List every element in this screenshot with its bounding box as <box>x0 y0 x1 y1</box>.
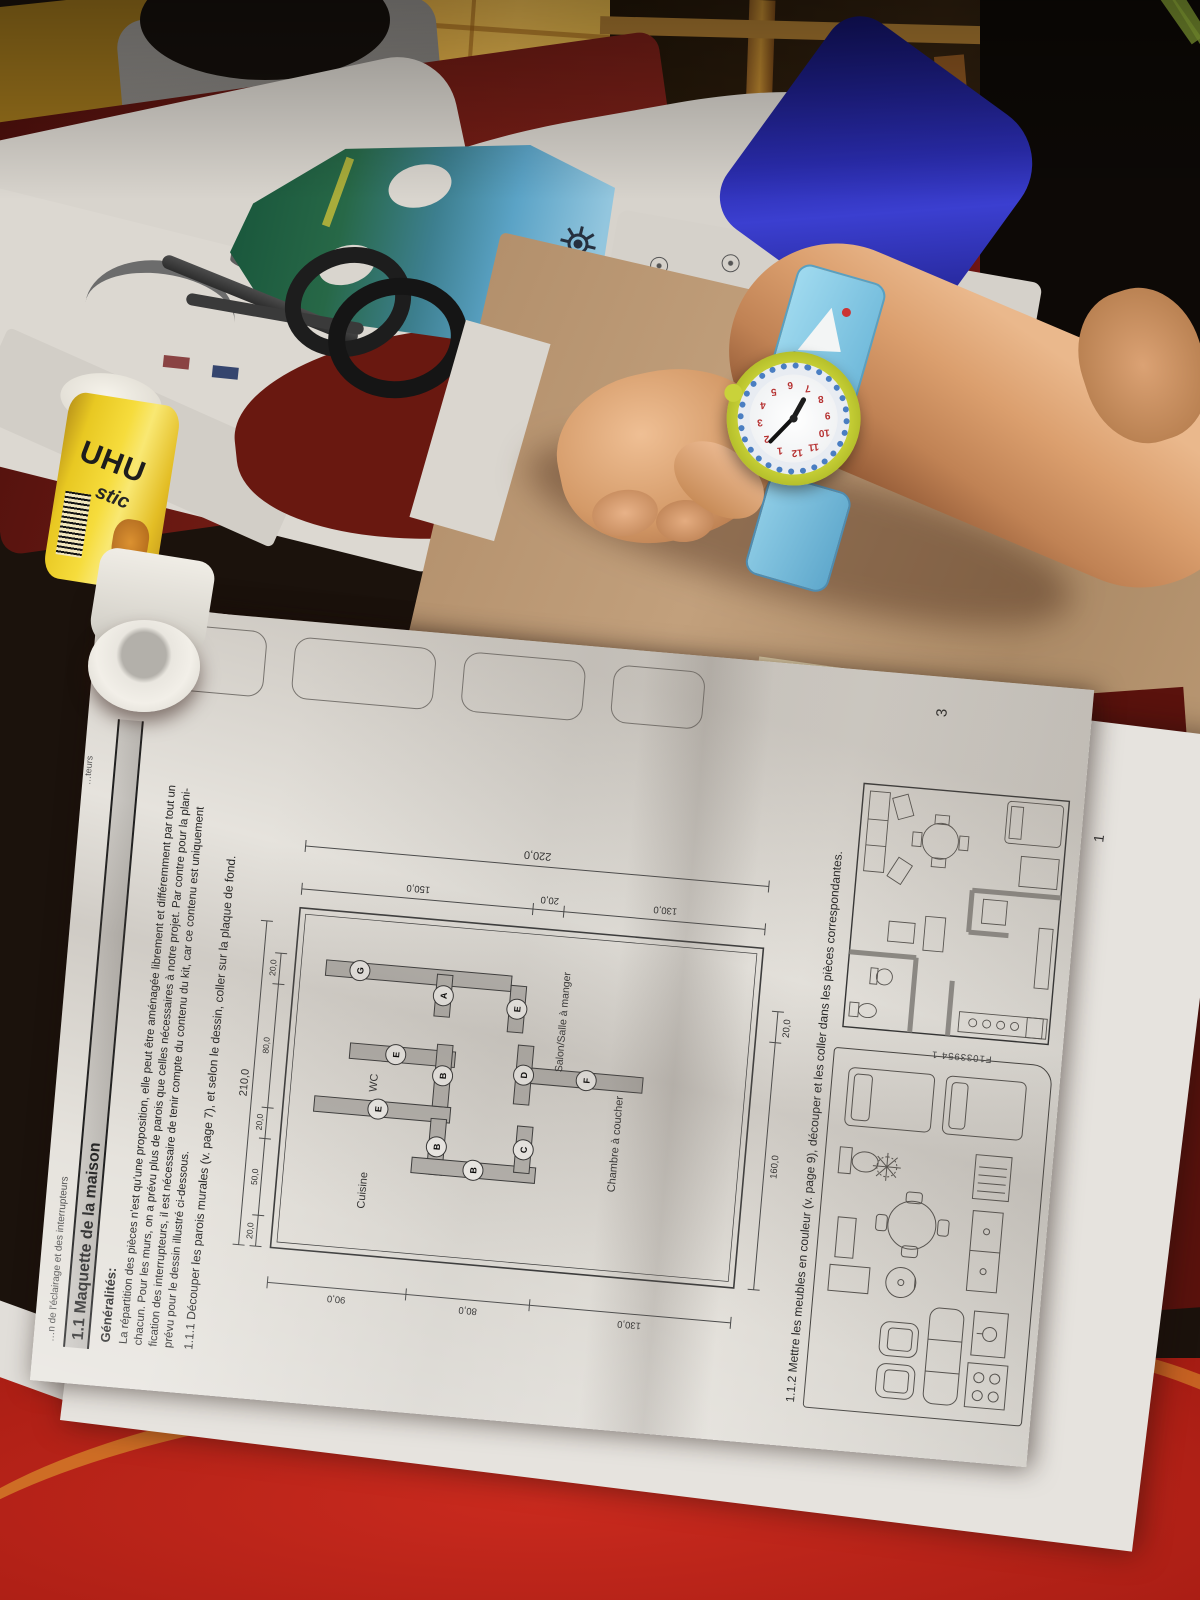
svg-text:160,0: 160,0 <box>768 1155 781 1180</box>
printed-mark <box>163 355 190 370</box>
strap-dot <box>841 307 852 318</box>
glue-stick-cap <box>88 620 200 712</box>
dial-center <box>789 414 798 423</box>
svg-text:210,0: 210,0 <box>238 1068 252 1096</box>
svg-text:20,0: 20,0 <box>540 894 559 907</box>
wall-strip-outline <box>460 651 587 721</box>
partial-text: …teurs <box>82 755 94 785</box>
dial-number: 5 <box>770 386 777 398</box>
svg-text:G: G <box>355 967 366 975</box>
svg-text:20,0: 20,0 <box>244 1222 255 1240</box>
svg-text:220,0: 220,0 <box>523 848 551 862</box>
dial-number: 1 <box>777 444 784 456</box>
svg-text:WC: WC <box>367 1073 381 1092</box>
svg-text:50,0: 50,0 <box>249 1168 260 1186</box>
printed-arc-part <box>78 251 241 374</box>
dial-number: 4 <box>760 399 767 411</box>
dial-number: 9 <box>824 409 831 421</box>
craft-table-photo: 1 …teurs …n de l'éclairage et des interr… <box>0 0 1200 1600</box>
glue-brand-label: UHU <box>75 435 151 491</box>
svg-text:20,0: 20,0 <box>254 1113 265 1131</box>
mini-plan-walls <box>843 880 1061 1044</box>
svg-text:150,0: 150,0 <box>406 882 431 895</box>
wall-strips <box>309 960 651 1192</box>
dial-number: 11 <box>808 441 820 453</box>
dial-number: 8 <box>817 393 824 405</box>
svg-text:B: B <box>468 1166 479 1174</box>
svg-text:20,0: 20,0 <box>267 959 278 977</box>
svg-text:80,0: 80,0 <box>260 1036 271 1054</box>
mini-plan-furniture <box>848 789 1066 1039</box>
page-number: 1 <box>1090 833 1107 843</box>
svg-text:D: D <box>519 1071 530 1079</box>
svg-text:E: E <box>373 1106 383 1113</box>
furnished-mini-plan <box>840 780 1073 1048</box>
svg-text:F: F <box>581 1077 591 1084</box>
svg-text:E: E <box>512 1006 522 1013</box>
printed-rivet-mark <box>720 253 741 274</box>
dial-number: 3 <box>756 416 763 428</box>
svg-text:A: A <box>439 992 450 1000</box>
furniture-cutout-sheet <box>803 1047 1054 1427</box>
instruction-sheet-page3: …teurs …n de l'éclairage et des interrup… <box>30 603 1094 1467</box>
svg-text:90,0: 90,0 <box>327 1293 346 1306</box>
page-number: 3 <box>933 708 951 718</box>
dial-number: 7 <box>804 382 811 394</box>
svg-text:Cuisine: Cuisine <box>355 1171 370 1209</box>
svg-text:Salon/Salle à manger: Salon/Salle à manger <box>553 971 574 1073</box>
barcode <box>56 491 92 558</box>
svg-text:B: B <box>438 1072 449 1080</box>
svg-text:80,0: 80,0 <box>458 1304 477 1317</box>
furniture-outlines <box>819 1067 1033 1410</box>
room-labels: Cuisine WC Salon/Salle à manger Chambre … <box>355 955 636 1231</box>
wall-strip-outline <box>290 636 437 710</box>
printed-mark <box>212 365 239 380</box>
dial-number: 12 <box>791 446 803 458</box>
generalites-heading: Généralités: <box>98 1267 119 1343</box>
dial-number: 10 <box>818 426 830 438</box>
svg-text:C: C <box>518 1146 529 1154</box>
svg-text:B: B <box>432 1143 443 1151</box>
dial-number: 6 <box>787 379 794 391</box>
svg-text:E: E <box>391 1051 401 1058</box>
svg-text:20,0: 20,0 <box>781 1019 794 1038</box>
